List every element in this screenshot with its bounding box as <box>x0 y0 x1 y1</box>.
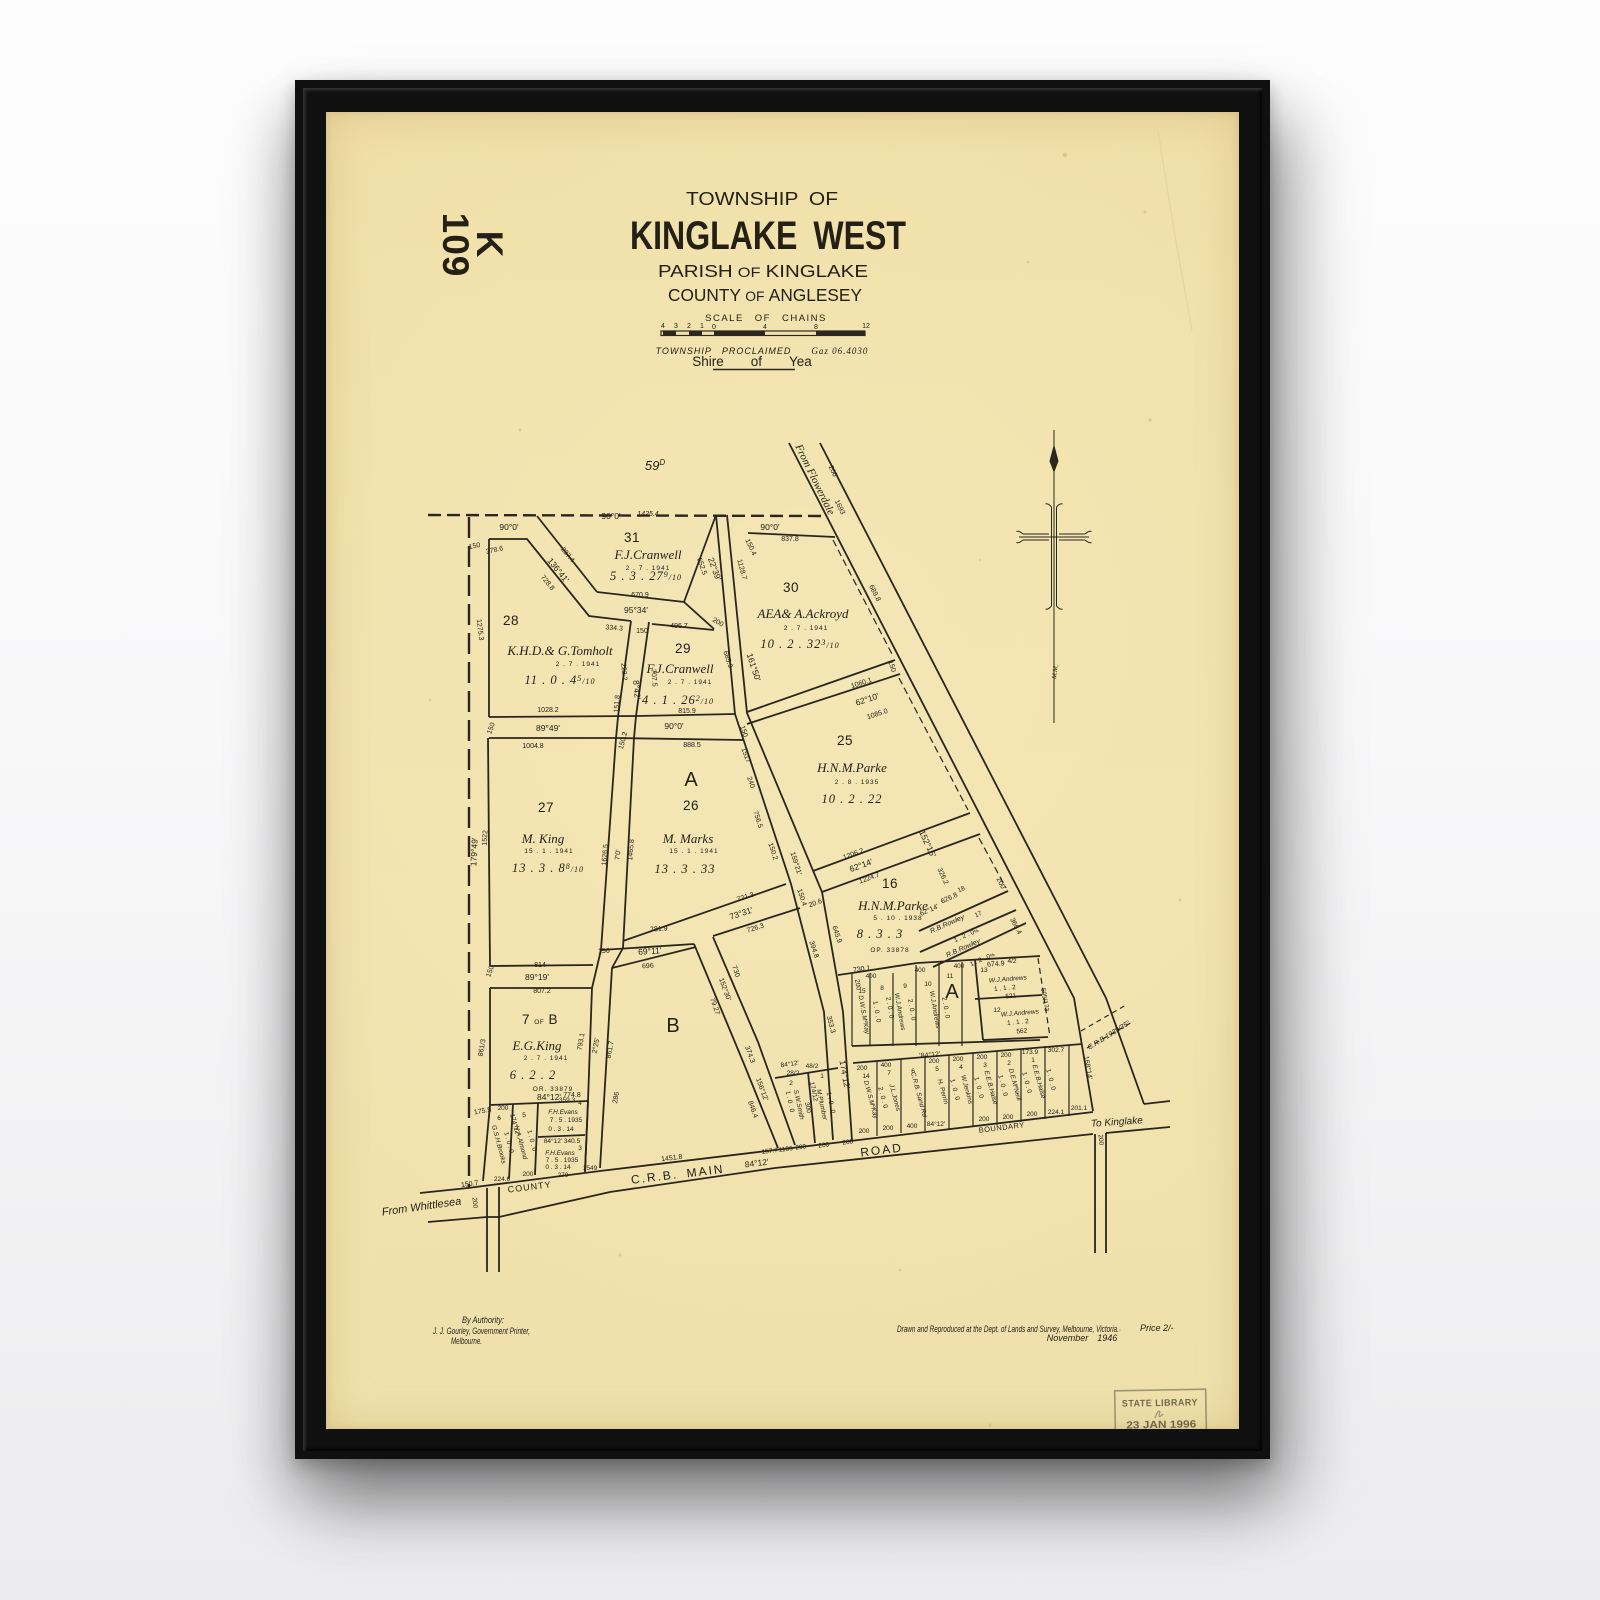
svg-text:150: 150 <box>636 628 648 635</box>
svg-text:10: 10 <box>924 981 932 988</box>
svg-text:1425.4: 1425.4 <box>637 511 659 518</box>
svg-text:79.27: 79.27 <box>708 997 721 1016</box>
svg-text:1004.8: 1004.8 <box>522 743 544 750</box>
svg-text:1626.5: 1626.5 <box>601 844 610 866</box>
svg-text:7'0': 7'0' <box>615 849 623 860</box>
svg-text:0: 0 <box>712 324 716 331</box>
svg-text:27: 27 <box>538 800 554 815</box>
svg-text:11: 11 <box>947 973 954 980</box>
svg-text:562: 562 <box>1016 1028 1028 1036</box>
svg-text:150.2: 150.2 <box>766 842 778 861</box>
svg-text:5: 5 <box>935 1066 939 1073</box>
svg-text:400: 400 <box>881 1062 892 1069</box>
svg-text:353.3: 353.3 <box>825 1015 836 1034</box>
svg-text:201.1: 201.1 <box>1071 1105 1088 1112</box>
svg-text:400: 400 <box>866 973 877 980</box>
svg-text:90°0': 90°0' <box>760 522 780 532</box>
svg-text:1517: 1517 <box>739 747 751 764</box>
svg-text:7 OF B: 7 OF B <box>522 1012 558 1027</box>
svg-text:1275.3: 1275.3 <box>475 619 485 641</box>
svg-text:84°12': 84°12' <box>780 1059 799 1069</box>
svg-text:168°14': 168°14' <box>1082 1055 1094 1080</box>
svg-text:150.4: 150.4 <box>795 888 807 907</box>
svg-text:TOWNSHIP OF: TOWNSHIP OF <box>686 189 838 209</box>
svg-text:M. King: M. King <box>521 831 565 846</box>
svg-text:150: 150 <box>738 725 749 738</box>
svg-text:F.H.Evans: F.H.Evans <box>545 1150 575 1157</box>
svg-text:7 . 5 . 1935: 7 . 5 . 1935 <box>546 1157 579 1164</box>
svg-text:3: 3 <box>674 323 678 330</box>
svg-text:685.9: 685.9 <box>721 650 733 669</box>
svg-text:200: 200 <box>523 1171 534 1178</box>
svg-text:To Kinglake: To Kinglake <box>1091 1115 1144 1130</box>
svg-text:861/3: 861/3 <box>478 1038 488 1057</box>
svg-text:2 . 7 . 1941: 2 . 7 . 1941 <box>668 679 713 686</box>
svg-text:366.4: 366.4 <box>1008 917 1022 936</box>
svg-text:Price 2/-: Price 2/- <box>1140 1323 1174 1333</box>
svg-text:674.9: 674.9 <box>987 960 1005 969</box>
svg-text:6 . 2 . 2: 6 . 2 . 2 <box>510 1068 557 1082</box>
svg-text:5: 5 <box>522 1112 526 1119</box>
svg-text:F.J.Cranwell: F.J.Cranwell <box>614 547 682 562</box>
svg-text:721.3: 721.3 <box>736 892 755 904</box>
svg-text:1128.7: 1128.7 <box>735 559 747 581</box>
svg-text:0 . 3 . 14: 0 . 3 . 14 <box>545 1164 571 1171</box>
svg-text:H.N.M.Parke: H.N.M.Parke <box>857 898 928 913</box>
svg-text:200: 200 <box>857 1065 868 1072</box>
svg-text:200: 200 <box>1001 1052 1012 1059</box>
svg-text:334.3: 334.3 <box>605 624 623 633</box>
svg-text:16: 16 <box>882 876 898 891</box>
svg-text:C.R.B 1939/35°: C.R.B 1939/35° <box>1086 1019 1132 1052</box>
svg-text:8°42': 8°42' <box>631 680 643 700</box>
svg-text:W.Jenkins: W.Jenkins <box>959 1074 974 1105</box>
svg-text:156°12': 156°12' <box>754 1077 770 1102</box>
svg-text:89°19': 89°19' <box>525 972 549 982</box>
svg-text:200: 200 <box>853 979 862 991</box>
svg-text:1465.8: 1465.8 <box>627 839 636 861</box>
svg-text:1: 1 <box>700 323 704 330</box>
svg-text:AEA& A.Ackroyd: AEA& A.Ackroyd <box>757 606 849 621</box>
svg-text:240: 240 <box>745 776 756 789</box>
svg-text:November 1946: November 1946 <box>1047 1333 1118 1343</box>
svg-text:2 . 0 . 0: 2 . 0 . 0 <box>876 1086 888 1109</box>
svg-text:645.9: 645.9 <box>830 925 842 944</box>
svg-text:31: 31 <box>624 530 640 545</box>
svg-text:2°25': 2°25' <box>591 1037 602 1054</box>
svg-text:15 . 1 . 1941: 15 . 1 . 1941 <box>524 848 573 855</box>
svg-text:7: 7 <box>887 1070 891 1077</box>
svg-text:270: 270 <box>558 1172 569 1179</box>
svg-text:48/2: 48/2 <box>806 1063 819 1070</box>
svg-text:521: 521 <box>1005 993 1017 1001</box>
svg-text:ROAD: ROAD <box>859 1140 903 1159</box>
svg-text:400: 400 <box>954 963 965 970</box>
svg-text:J. J. Gourley, Government Prin: J. J. Gourley, Government Printer, <box>432 1326 530 1336</box>
svg-text:150.2: 150.2 <box>618 731 629 750</box>
svg-text:From Whittlesea: From Whittlesea <box>381 1196 462 1219</box>
svg-text:200: 200 <box>929 1058 940 1065</box>
svg-text:200: 200 <box>953 1056 964 1063</box>
svg-text:84°12': 84°12' <box>744 1157 769 1170</box>
svg-text:4 . 1 . 262/10: 4 . 1 . 262/10 <box>642 693 714 707</box>
svg-text:Melbourne.: Melbourne. <box>451 1336 482 1346</box>
svg-text:13 . 3 . 33: 13 . 3 . 33 <box>655 862 716 876</box>
svg-text:400: 400 <box>907 1123 918 1130</box>
svg-text:OP. 33878: OP. 33878 <box>870 947 909 954</box>
svg-text:161°50': 161°50' <box>745 652 763 683</box>
svg-text:109: 109 <box>435 213 476 278</box>
svg-text:888.5: 888.5 <box>683 742 701 749</box>
svg-text:200: 200 <box>842 1138 854 1146</box>
svg-text:H. Perrin: H. Perrin <box>936 1078 949 1105</box>
svg-text:5 . 10 . 1938: 5 . 10 . 1938 <box>873 915 922 922</box>
svg-text:1186: 1186 <box>778 1145 793 1154</box>
svg-text:696: 696 <box>642 963 654 971</box>
svg-text:2 . 8 . 1935: 2 . 8 . 1935 <box>835 779 880 786</box>
svg-text:157.7: 157.7 <box>761 1147 778 1156</box>
svg-text:90°0': 90°0' <box>499 522 519 532</box>
svg-text:KINGLAKE WEST: KINGLAKE WEST <box>630 214 906 258</box>
svg-text:H.N.M.Parke: H.N.M.Parke <box>816 760 887 775</box>
svg-text:200: 200 <box>883 1125 894 1132</box>
svg-text:4: 4 <box>959 1064 963 1071</box>
svg-text:1: 1 <box>820 1073 824 1080</box>
svg-text:152°15': 152°15' <box>917 829 938 860</box>
svg-text:200: 200 <box>1097 1134 1105 1146</box>
svg-text:730: 730 <box>730 965 741 978</box>
svg-text:18: 18 <box>957 885 967 894</box>
svg-text:STATE LIBRARY: STATE LIBRARY <box>1122 1397 1198 1409</box>
svg-text:M. Marks: M. Marks <box>662 831 714 846</box>
svg-text:159°21': 159°21' <box>788 851 803 876</box>
svg-text:69°11': 69°11' <box>638 945 662 957</box>
svg-text:11 . 0 . 45/10: 11 . 0 . 45/10 <box>524 673 595 687</box>
svg-text:By Authority:: By Authority: <box>462 1315 504 1325</box>
svg-text:150: 150 <box>886 660 897 673</box>
svg-text:F.H.Evans: F.H.Evans <box>548 1109 578 1116</box>
svg-text:237.4: 237.4 <box>559 546 576 564</box>
svg-text:89°49': 89°49' <box>536 723 560 733</box>
svg-text:8 . 3 . 3: 8 . 3 . 3 <box>857 927 904 941</box>
svg-text:SCALE OF CHAINS: SCALE OF CHAINS <box>705 313 827 324</box>
svg-text:15 . 1 . 1941: 15 . 1 . 1941 <box>669 848 718 855</box>
svg-text:174°12': 174°12' <box>838 1059 853 1089</box>
svg-text:84°12': 84°12' <box>927 1120 945 1128</box>
svg-text:E.G.King: E.G.King <box>511 1038 562 1053</box>
svg-text:2 . 7 . 1941: 2 . 7 . 1941 <box>556 661 601 668</box>
svg-text:781.9: 781.9 <box>650 925 668 933</box>
svg-text:179°49': 179°49' <box>468 837 480 867</box>
svg-text:2 . 0 . 0: 2 . 0 . 0 <box>906 998 917 1021</box>
svg-text:A: A <box>684 769 698 791</box>
svg-text:4/2: 4/2 <box>1007 958 1016 965</box>
svg-text:1028.2: 1028.2 <box>537 707 559 714</box>
svg-text:R.B.Rowley: R.B.Rowley <box>945 938 982 959</box>
svg-text:846.4: 846.4 <box>746 1100 759 1119</box>
svg-text:B: B <box>666 1015 679 1037</box>
svg-text:MAIN: MAIN <box>686 1162 725 1181</box>
svg-text:84°12' 340.5: 84°12' 340.5 <box>544 1137 581 1145</box>
svg-text:326.2: 326.2 <box>935 867 949 886</box>
svg-text:1 . 1 . 2: 1 . 1 . 2 <box>994 984 1017 993</box>
svg-text:59D: 59D <box>645 458 665 473</box>
svg-text:200: 200 <box>859 1128 870 1135</box>
svg-text:505/173: 505/173 <box>1039 988 1050 1013</box>
svg-text:4: 4 <box>763 324 767 331</box>
svg-text:4: 4 <box>661 323 665 330</box>
svg-text:From Flowerdale: From Flowerdale <box>792 442 837 518</box>
svg-text:28: 28 <box>503 613 519 628</box>
svg-text:2: 2 <box>687 323 691 330</box>
svg-text:200: 200 <box>818 1141 830 1149</box>
svg-text:D.E.MºNeill: D.E.MºNeill <box>1007 1068 1022 1102</box>
svg-text:302.7: 302.7 <box>1048 1047 1065 1054</box>
svg-text:670.9: 670.9 <box>631 592 649 599</box>
svg-text:M.M.: M.M. <box>1051 664 1060 679</box>
svg-text:13: 13 <box>980 967 988 974</box>
svg-text:286: 286 <box>612 1091 621 1104</box>
svg-text:807.2: 807.2 <box>533 988 551 995</box>
svg-text:1 . 0 . 0: 1 . 0 . 0 <box>1044 1068 1056 1091</box>
svg-text:151.8: 151.8 <box>613 695 622 713</box>
svg-text:626.8: 626.8 <box>940 892 959 906</box>
svg-text:793.1: 793.1 <box>577 1032 587 1051</box>
svg-text:1 . 0 . 0: 1 . 0 . 0 <box>948 1078 960 1101</box>
svg-text:756.5: 756.5 <box>751 810 763 829</box>
svg-text:728.8: 728.8 <box>539 574 556 592</box>
svg-text:2 . 7 . 1941: 2 . 7 . 1941 <box>524 1055 569 1062</box>
svg-text:3: 3 <box>578 1145 582 1152</box>
svg-text:496.7: 496.7 <box>670 623 688 630</box>
svg-text:200: 200 <box>977 1054 988 1061</box>
svg-text:200: 200 <box>795 1143 807 1151</box>
svg-text:73°31': 73°31' <box>728 905 754 922</box>
svg-text:815.9: 815.9 <box>678 708 696 715</box>
svg-text:222.2: 222.2 <box>619 663 628 681</box>
svg-text:6: 6 <box>497 1115 501 1122</box>
svg-text:1 . 0 . 0: 1 . 0 . 0 <box>972 1076 984 1099</box>
svg-text:7 . 5 . 1935: 7 . 5 . 1935 <box>550 1117 583 1124</box>
svg-text:2 . 7 . 1941: 2 . 7 . 1941 <box>784 625 829 632</box>
svg-text:W.J.Andrews: W.J.Andrews <box>989 974 1028 984</box>
svg-text:224.1: 224.1 <box>1048 1109 1065 1116</box>
svg-text:150: 150 <box>598 948 610 956</box>
svg-text:814: 814 <box>534 962 546 969</box>
svg-text:152°30': 152°30' <box>717 977 733 1002</box>
svg-text:200: 200 <box>995 877 1007 891</box>
svg-text:2: 2 <box>1007 1060 1011 1067</box>
svg-text:Shire of Yea: Shire of Yea <box>692 354 812 369</box>
svg-text:2: 2 <box>789 1080 793 1087</box>
svg-text:28/2: 28/2 <box>787 1070 800 1077</box>
svg-text:J.L.Jones: J.L.Jones <box>887 1082 901 1112</box>
svg-text:1060.1: 1060.1 <box>850 677 873 690</box>
svg-text:200: 200 <box>498 1105 509 1112</box>
svg-text:200: 200 <box>1003 1114 1014 1121</box>
svg-text:4: 4 <box>578 1100 582 1107</box>
svg-text:20.6: 20.6 <box>808 898 823 909</box>
svg-text:1522: 1522 <box>482 830 490 846</box>
svg-text:W.J.Andrews: W.J.Andrews <box>1001 1008 1040 1018</box>
svg-text:150: 150 <box>485 965 496 978</box>
svg-text:25: 25 <box>837 733 853 748</box>
svg-text:200: 200 <box>1027 1111 1038 1118</box>
svg-text:COUNTY OF ANGLESEY: COUNTY OF ANGLESEY <box>668 285 862 305</box>
svg-text:G.S.H.Brooks: G.S.H.Brooks <box>490 1125 507 1166</box>
svg-text:10 . 2 . 323/10: 10 . 2 . 323/10 <box>760 637 839 651</box>
svg-text:173.9: 173.9 <box>1022 1049 1039 1056</box>
svg-text:200: 200 <box>471 1197 479 1209</box>
svg-text:62°14': 62°14' <box>848 856 874 874</box>
svg-text:3: 3 <box>983 1062 987 1069</box>
svg-text:374.3: 374.3 <box>743 1045 756 1064</box>
svg-text:359.3: 359.3 <box>559 1097 576 1104</box>
svg-text:1549: 1549 <box>583 1165 598 1172</box>
svg-text:1085.0: 1085.0 <box>866 708 889 721</box>
svg-text:90°0': 90°0' <box>601 511 621 521</box>
svg-text:95°34': 95°34' <box>624 605 648 615</box>
svg-text:8: 8 <box>880 985 884 992</box>
svg-text:400: 400 <box>915 967 926 974</box>
svg-text:30: 30 <box>783 580 799 595</box>
svg-text:PARISH OF KINGLAKE: PARISH OF KINGLAKE <box>658 261 868 281</box>
svg-text:13 . 3 . 88/10: 13 . 3 . 88/10 <box>512 861 584 875</box>
svg-text:150: 150 <box>486 722 497 735</box>
svg-text:23 JAN 1996: 23 JAN 1996 <box>1126 1418 1196 1429</box>
svg-text:837.8: 837.8 <box>781 536 799 543</box>
svg-text:10 . 2 . 22: 10 . 2 . 22 <box>822 792 883 806</box>
svg-text:5 . 3 . 279/10: 5 . 3 . 279/10 <box>610 569 682 583</box>
svg-text:12: 12 <box>862 323 870 330</box>
svg-text:150: 150 <box>468 542 481 551</box>
svg-text:150.4: 150.4 <box>743 538 757 557</box>
svg-text:1: 1 <box>1031 1057 1035 1064</box>
svg-text:200: 200 <box>979 1116 990 1123</box>
svg-text:1 . 1 . 2: 1 . 1 . 2 <box>1007 1018 1030 1027</box>
svg-text:17: 17 <box>974 910 984 919</box>
svg-text:D.W.S.MºKay: D.W.S.MºKay <box>857 995 871 1036</box>
svg-text:0 . 3 . 14: 0 . 3 . 14 <box>548 1126 574 1133</box>
svg-text:90°0': 90°0' <box>664 721 684 731</box>
svg-text:1 . 0 . 0: 1 . 0 . 0 <box>996 1074 1008 1097</box>
svg-text:9: 9 <box>903 983 907 990</box>
svg-text:K.H.D.& G.Tomholt: K.H.D.& G.Tomholt <box>506 643 613 658</box>
svg-text:707.5: 707.5 <box>649 669 658 687</box>
svg-text:26: 26 <box>683 798 699 813</box>
svg-text:8: 8 <box>814 324 818 331</box>
svg-text:29: 29 <box>675 641 691 656</box>
svg-text:1 . 0 . 0: 1 . 0 . 0 <box>1020 1071 1032 1094</box>
svg-text:224.6: 224.6 <box>494 1176 511 1183</box>
svg-text:1 . 0 . 0: 1 . 0 . 0 <box>871 1000 882 1023</box>
svg-text:84°12': 84°12' <box>537 1092 561 1102</box>
svg-text:62°10': 62°10' <box>854 691 880 708</box>
